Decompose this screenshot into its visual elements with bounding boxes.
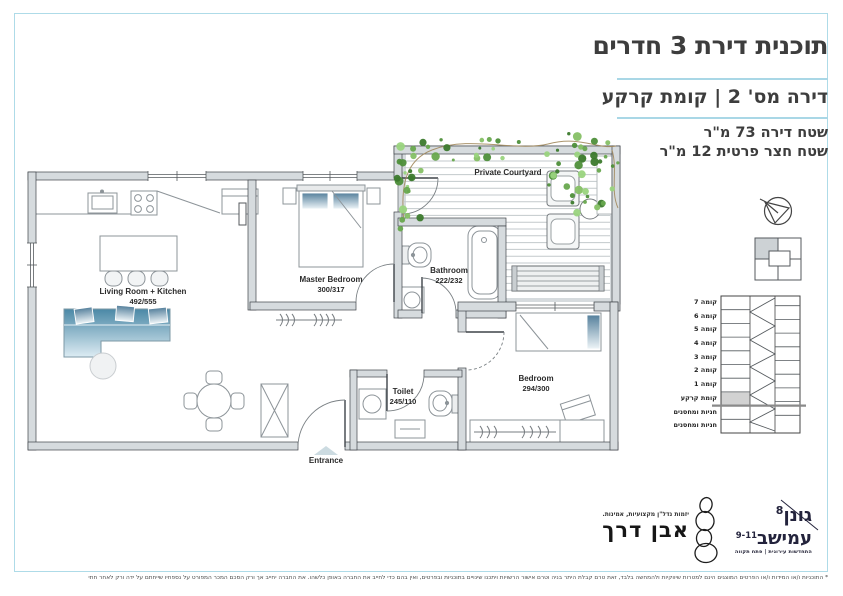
floor-label: קומה 2 <box>627 364 717 378</box>
floor-label: חניות ומחסנים <box>627 406 717 420</box>
page-title: תוכנית דירת 3 חדרים <box>593 31 829 60</box>
floorplan-page: { "colors": { "accent_blue": "#a9d7e6", … <box>0 0 843 596</box>
gonen-line2-number: 9-11 <box>736 531 757 541</box>
gonen-amishav-logo: גונן8 עמישב9-11 התחדשות עירונית | פתח תק… <box>735 501 812 556</box>
divider-rule <box>617 117 828 119</box>
apartment-subtitle: דירה מס' 2 | קומת קרקע <box>602 86 828 108</box>
floor-label: קומה 7 <box>627 296 717 310</box>
entrance-label: Entrance <box>309 456 343 466</box>
courtyard-area: שטח חצר פרטית 12 מ"ר <box>660 143 828 162</box>
entry-closet <box>261 384 288 437</box>
area-summary: שטח דירה 73 מ"ר שטח חצר פרטית 12 מ"ר <box>660 124 828 162</box>
kitchen-island <box>100 236 177 286</box>
stones-logo-icon <box>694 496 717 563</box>
floor-label: חניות ומחסנים <box>627 419 717 433</box>
floor-label: קומה 5 <box>627 323 717 337</box>
floor-list: קומה 7קומה 6קומה 5קומה 4קומה 3קומה 2קומה… <box>627 296 717 433</box>
floor-label: קומה 1 <box>627 378 717 392</box>
even-derech-logo: אבן דרך <box>602 518 689 542</box>
room-label-living: Living Room + Kitchen 492/555 <box>100 287 187 306</box>
floor-label: קומה 4 <box>627 337 717 351</box>
apartment-area: שטח דירה 73 מ"ר <box>660 124 828 143</box>
floor-label: קומת קרקע <box>627 392 717 406</box>
building-section-diagram <box>712 296 806 433</box>
rug <box>90 353 116 379</box>
room-label-bedroom: Bedroom 294/300 <box>518 374 553 393</box>
even-derech-tagline: יזמות נדל"ן מקצועיות, אמינות. <box>602 511 689 518</box>
room-label-courtyard: Private Courtyard <box>474 168 541 178</box>
divider-rule <box>617 78 828 80</box>
tv <box>239 203 246 225</box>
legal-disclaimer: * התוכניות ו/או המידות ו/או הפרטים המוצג… <box>88 575 828 581</box>
gonen-line1: גונן <box>783 505 812 526</box>
room-label-toilet: Toilet 245/110 <box>390 387 417 406</box>
gonen-line2: עמישב <box>757 528 812 549</box>
room-label-bathroom: Bathroom 222/232 <box>430 266 468 285</box>
floor-label: קומה 6 <box>627 310 717 324</box>
room-label-master: Master Bedroom 300/317 <box>299 275 362 294</box>
floor-label: קומה 3 <box>627 351 717 365</box>
gonen-tagline: התחדשות עירונית | פתח תקווה <box>735 549 812 556</box>
entrance-arrow-icon <box>314 446 338 455</box>
north-compass-icon <box>760 198 792 225</box>
key-plan-diagram <box>755 238 801 280</box>
